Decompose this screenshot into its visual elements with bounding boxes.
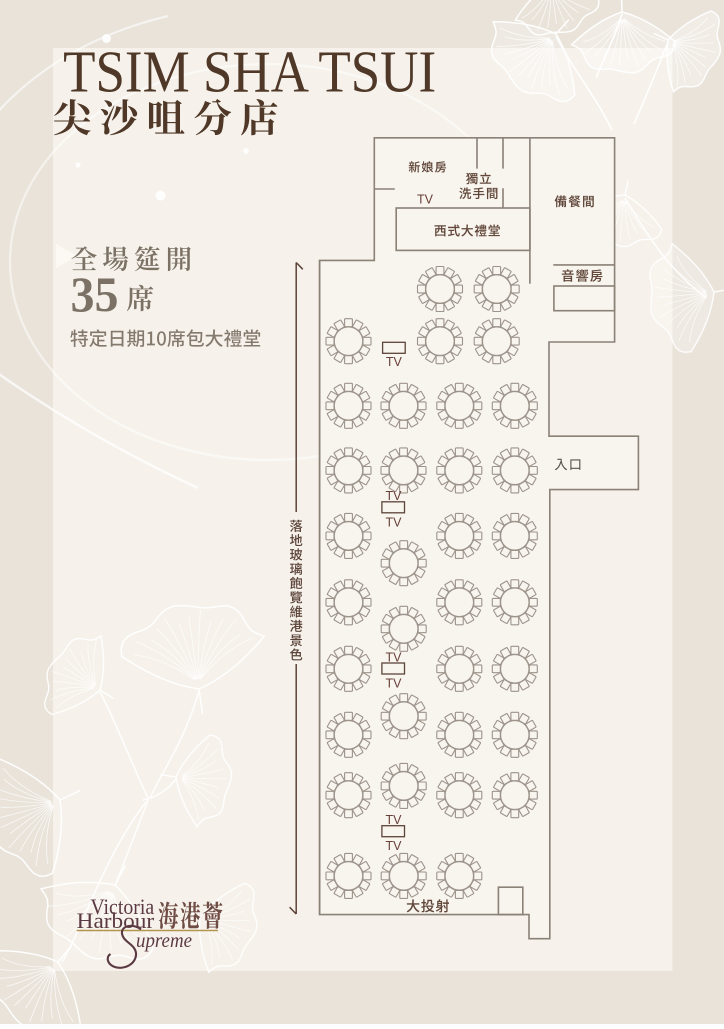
svg-text:35: 35 (71, 266, 119, 322)
svg-text:TV: TV (386, 355, 403, 369)
svg-text:TV: TV (386, 839, 403, 853)
svg-text:TV: TV (417, 193, 434, 207)
svg-text:TV: TV (386, 516, 403, 530)
svg-text:TV: TV (386, 650, 403, 664)
svg-text:TV: TV (386, 677, 403, 691)
svg-text:TV: TV (386, 489, 403, 503)
svg-text:TV: TV (386, 813, 403, 827)
svg-text:TSIM SHA TSUI: TSIM SHA TSUI (63, 39, 436, 105)
svg-text:upreme: upreme (136, 930, 192, 952)
